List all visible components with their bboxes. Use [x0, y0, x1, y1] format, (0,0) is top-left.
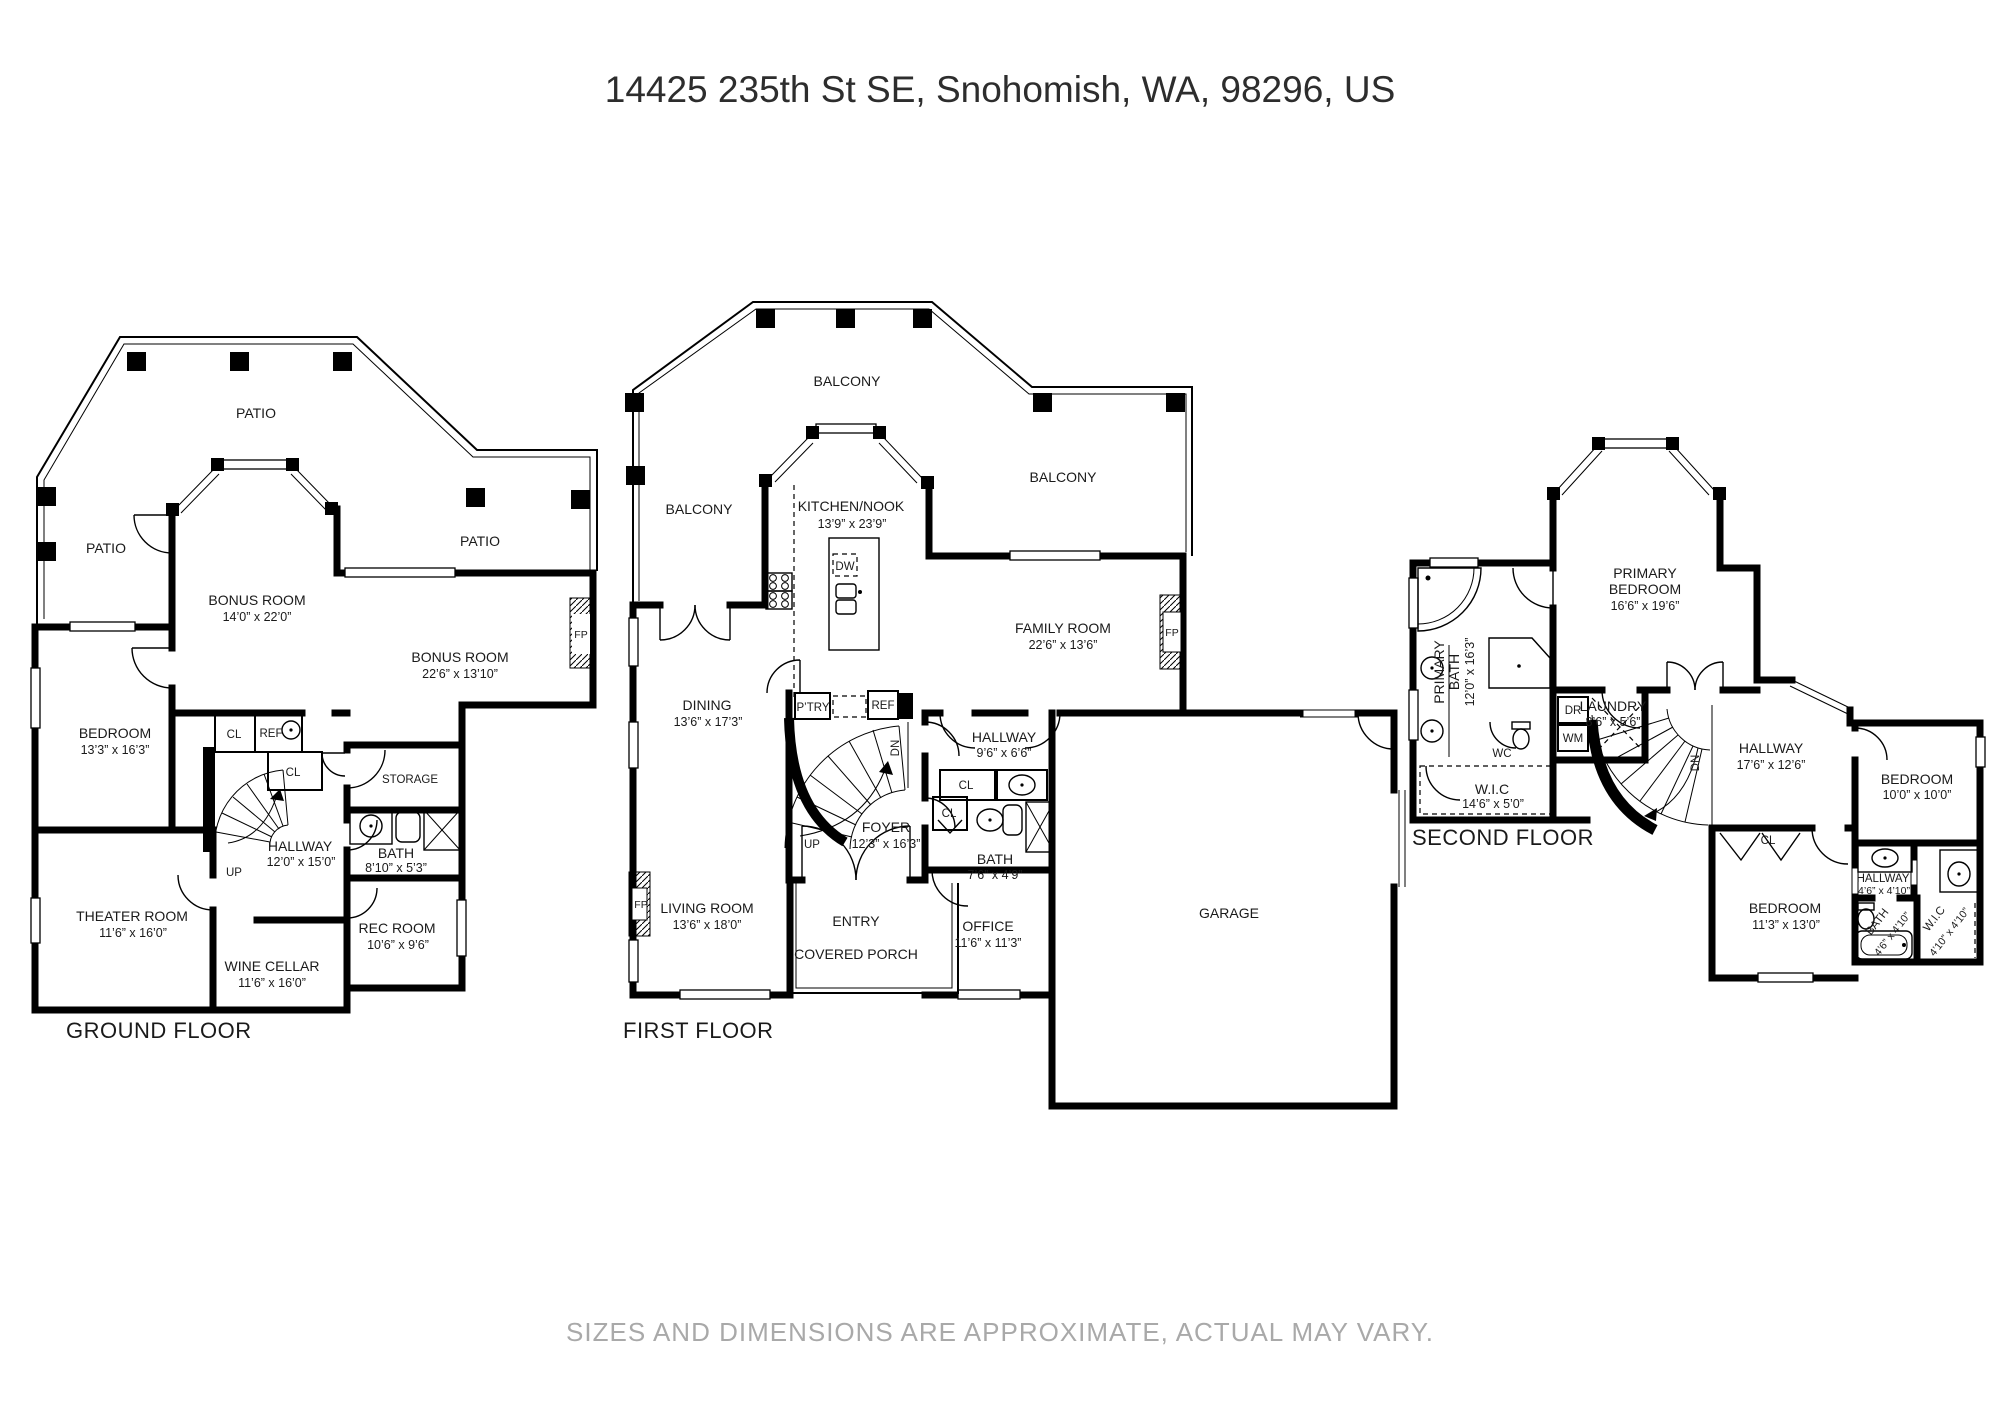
range-icon [766, 485, 794, 700]
kitchen-island: DW [829, 538, 879, 650]
patio-post [333, 352, 352, 371]
ground-fp-label: FP [574, 629, 587, 641]
pantry-label: P’TRY [796, 702, 829, 714]
living-room-dims: 13’6” x 18’0” [673, 918, 742, 932]
second-walls [1413, 493, 1980, 978]
covered-porch-outline [790, 883, 958, 993]
first-dn-label: DN [890, 740, 902, 757]
family-fp-label: FP [1165, 627, 1178, 639]
bedroom2-label: BEDROOM [1881, 771, 1953, 787]
primary-bedroom-dims: 16’6” x 19’6” [1611, 599, 1680, 613]
window [1010, 551, 1100, 560]
second-dn-label: DN [1690, 755, 1702, 772]
ground-bath-dims: 8’10” x 5’3” [365, 861, 427, 875]
patio-post [571, 490, 590, 509]
wine-cellar-dims: 11’6” x 16’0” [238, 976, 306, 990]
balcony-right-label: BALCONY [1030, 469, 1098, 485]
bedroom2-dims: 10’0” x 10’0” [1883, 788, 1952, 802]
toilet-icon [1003, 805, 1022, 835]
bonus-room-2-label: BONUS ROOM [411, 649, 508, 665]
laundry-label: LAUNDRY [1580, 698, 1647, 714]
patio-post [37, 487, 56, 506]
bath-fixtures [350, 810, 460, 850]
balcony-post [626, 466, 645, 485]
counter [833, 696, 866, 717]
ground-cl1-label: CL [227, 729, 242, 741]
primary-bath-label-1: PRIMARY [1431, 640, 1447, 704]
first-up-label: UP [804, 839, 820, 851]
window [958, 990, 1020, 999]
ground-bay-window [166, 458, 338, 516]
bedroom3-dims: 11’3” x 13’0” [1752, 918, 1820, 932]
washer-label: WM [1563, 733, 1583, 745]
first-floor-title: FIRST FLOOR [623, 1018, 774, 1043]
balcony-post [1033, 393, 1052, 412]
bonus-room-2-dims: 22’6” x 13’10” [422, 667, 498, 681]
hallway2-dims: 4’6” x 4’10” [1858, 885, 1910, 897]
second-floor-plan: PRIMARY BEDROOM 16’6” x 19’6” PRIMARY BA… [1409, 437, 1985, 982]
floor-plan-canvas: 14425 235th St SE, Snohomish, WA, 98296,… [0, 0, 2000, 1414]
ground-up-label: UP [226, 867, 242, 879]
covered-porch-label: COVERED PORCH [794, 946, 918, 962]
window [345, 568, 455, 577]
storage-label: STORAGE [382, 774, 438, 786]
window [1976, 737, 1985, 767]
balcony-post [1166, 393, 1185, 412]
family-room-dims: 22’6” x 13’6” [1029, 638, 1098, 652]
stair-arrow [879, 761, 893, 775]
dw-label: DW [835, 561, 854, 573]
primary-bedroom-label-2: BEDROOM [1609, 581, 1681, 597]
patio-post [466, 488, 485, 507]
second-floor-title: SECOND FLOOR [1412, 825, 1594, 850]
patio-post [230, 352, 249, 371]
address-title: 14425 235th St SE, Snohomish, WA, 98296,… [605, 69, 1396, 110]
family-room-label: FAMILY ROOM [1015, 620, 1111, 636]
patio-railing [37, 337, 597, 625]
primary-bath-label-2: BATH [1446, 654, 1462, 690]
first-cl2-label: CL [942, 808, 957, 820]
theater-room-label: THEATER ROOM [76, 908, 188, 924]
ground-floor-plan: FP [31, 337, 597, 1043]
foyer-label: FOYER [862, 819, 910, 835]
sink-icon [836, 584, 856, 598]
living-fp-label: FP [634, 899, 647, 911]
floor-plan-page: 14425 235th St SE, Snohomish, WA, 98296,… [0, 0, 2000, 1414]
second-bay-window [1547, 437, 1726, 500]
foyer-dims: 12’3” x 16’3” [852, 837, 921, 851]
window [1758, 973, 1813, 982]
ground-ref-label: REF [260, 728, 283, 740]
first-floor-plan: FP FP DW [623, 302, 1405, 1106]
ground-floor-title: GROUND FLOOR [66, 1018, 252, 1043]
window [31, 668, 40, 728]
second-cl-label: CL [1761, 835, 1776, 847]
first-hallway-label: HALLWAY [972, 729, 1037, 745]
window [629, 722, 638, 768]
corner-vanity [1940, 850, 1978, 892]
primary-bath-dims: 12’0” x 16’3” [1463, 638, 1477, 707]
bath-fixtures [977, 802, 1054, 852]
bonus-room-1-dims: 14’0” x 22’0” [223, 610, 292, 624]
fireplace: FP [570, 598, 593, 668]
window [680, 990, 770, 999]
second-hallway-label: HALLWAY [1739, 740, 1804, 756]
wic1-label: W.I.C [1475, 781, 1509, 797]
kitchen-dims: 13’9” x 23’9” [818, 517, 887, 531]
ground-patio-left-label: PATIO [86, 540, 126, 556]
bedroom3-label: BEDROOM [1749, 900, 1821, 916]
window [457, 900, 466, 956]
window-diagonal [1790, 680, 1850, 714]
ground-bedroom-dims: 13’3” x 16’3” [81, 743, 150, 757]
wic1-dims: 14’6” x 5’0” [1462, 797, 1524, 811]
window [1430, 558, 1478, 567]
window [1409, 578, 1418, 628]
first-bath-dims: 7’6” x 4’9” [968, 868, 1023, 882]
kitchen-bay-window [759, 424, 934, 489]
hallway2-label: HALLWAY [1857, 873, 1910, 885]
patio-post [37, 542, 56, 561]
window [70, 622, 135, 631]
office-label: OFFICE [962, 918, 1013, 934]
ground-bath-label: BATH [378, 845, 414, 861]
laundry-dims: 8’6” x 5’6” [1586, 715, 1641, 729]
wine-cellar-label: WINE CELLAR [225, 958, 320, 974]
balcony-post [836, 309, 855, 328]
wc-label: WC [1492, 748, 1511, 760]
kitchen-label: KITCHEN/NOOK [798, 498, 905, 514]
closet-chevron [938, 820, 962, 833]
balcony-left-label: BALCONY [666, 501, 734, 517]
garage-label: GARAGE [1199, 905, 1259, 921]
balcony-top-label: BALCONY [814, 373, 882, 389]
ground-bedroom-label: BEDROOM [79, 725, 151, 741]
bonus-room-1-label: BONUS ROOM [208, 592, 305, 608]
ground-hallway-dims: 12’0” x 15’0” [267, 855, 336, 869]
patio-post [127, 352, 146, 371]
fireplace: FP [629, 872, 650, 936]
entry-label: ENTRY [832, 913, 880, 929]
window [1409, 690, 1418, 740]
office-dims: 11’6” x 11’3” [955, 936, 1022, 950]
shower-icon [1489, 638, 1550, 688]
balcony-post [756, 309, 775, 328]
toilet-icon [396, 812, 420, 842]
first-cl1-label: CL [959, 780, 974, 792]
ground-patio-right-label: PATIO [460, 533, 500, 549]
rec-room-dims: 10’6” x 9’6” [367, 938, 429, 952]
disclaimer-text: SIZES AND DIMENSIONS ARE APPROXIMATE, AC… [566, 1317, 1434, 1347]
window [629, 940, 638, 982]
theater-room-dims: 11’6” x 16’0” [99, 926, 167, 940]
living-room-label: LIVING ROOM [660, 900, 753, 916]
ground-patio-top-label: PATIO [236, 405, 276, 421]
hall-vanity [1858, 845, 1912, 872]
dining-dims: 13’6” x 17’3” [674, 715, 743, 729]
primary-bedroom-label-1: PRIMARY [1613, 565, 1677, 581]
second-hallway-dims: 17’6” x 12’6” [1737, 758, 1806, 772]
sink-icon [836, 600, 856, 614]
stair-wall [203, 747, 215, 852]
ground-hallway-label: HALLWAY [268, 838, 333, 854]
wall-chunk [898, 693, 913, 719]
first-ref-label: REF [872, 700, 895, 712]
dining-label: DINING [683, 697, 732, 713]
balcony-post [913, 309, 932, 328]
balcony-railing [625, 302, 1192, 605]
rec-room-label: REC ROOM [359, 920, 436, 936]
window [31, 898, 40, 943]
ground-cl2-label: CL [286, 767, 301, 779]
first-hallway-dims: 9’6” x 6’6” [977, 746, 1032, 760]
fireplace: FP [1160, 595, 1183, 669]
toilet-icon [1512, 722, 1530, 729]
window [629, 618, 638, 666]
first-bath-label: BATH [977, 851, 1013, 867]
balcony-post [625, 393, 644, 412]
